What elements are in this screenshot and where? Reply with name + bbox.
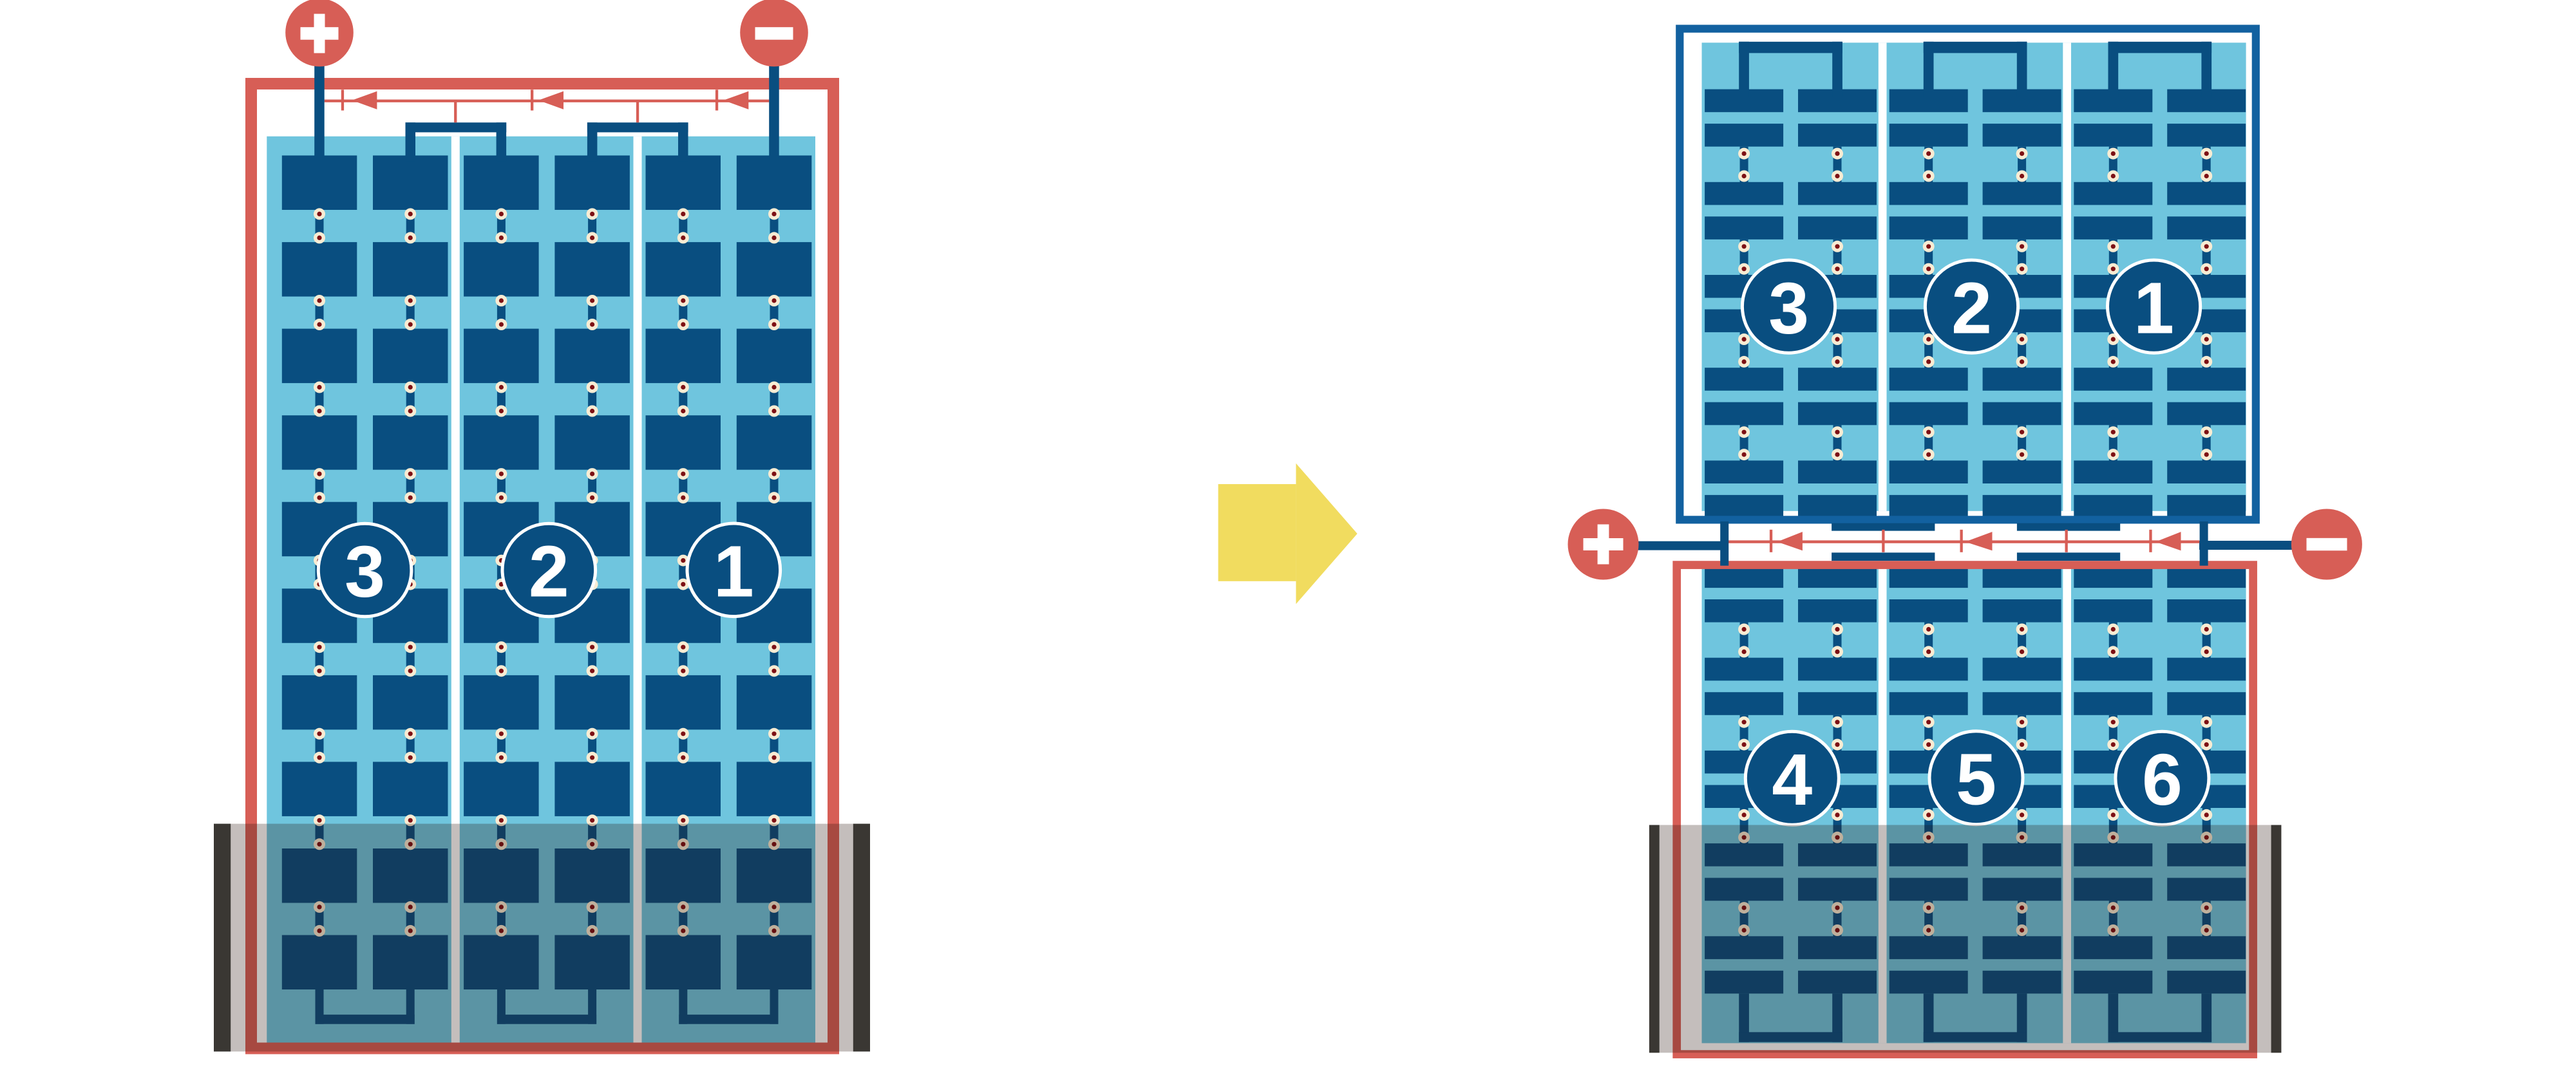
svg-text:2: 2 [529,531,569,612]
svg-text:3: 3 [345,531,385,612]
svg-text:2: 2 [1951,267,1992,348]
svg-text:6: 6 [2142,739,2183,820]
svg-text:5: 5 [1956,738,1996,820]
svg-text:1: 1 [714,531,754,612]
svg-text:4: 4 [1772,739,1812,820]
svg-text:3: 3 [1768,267,1809,348]
svg-text:1: 1 [2134,267,2174,348]
